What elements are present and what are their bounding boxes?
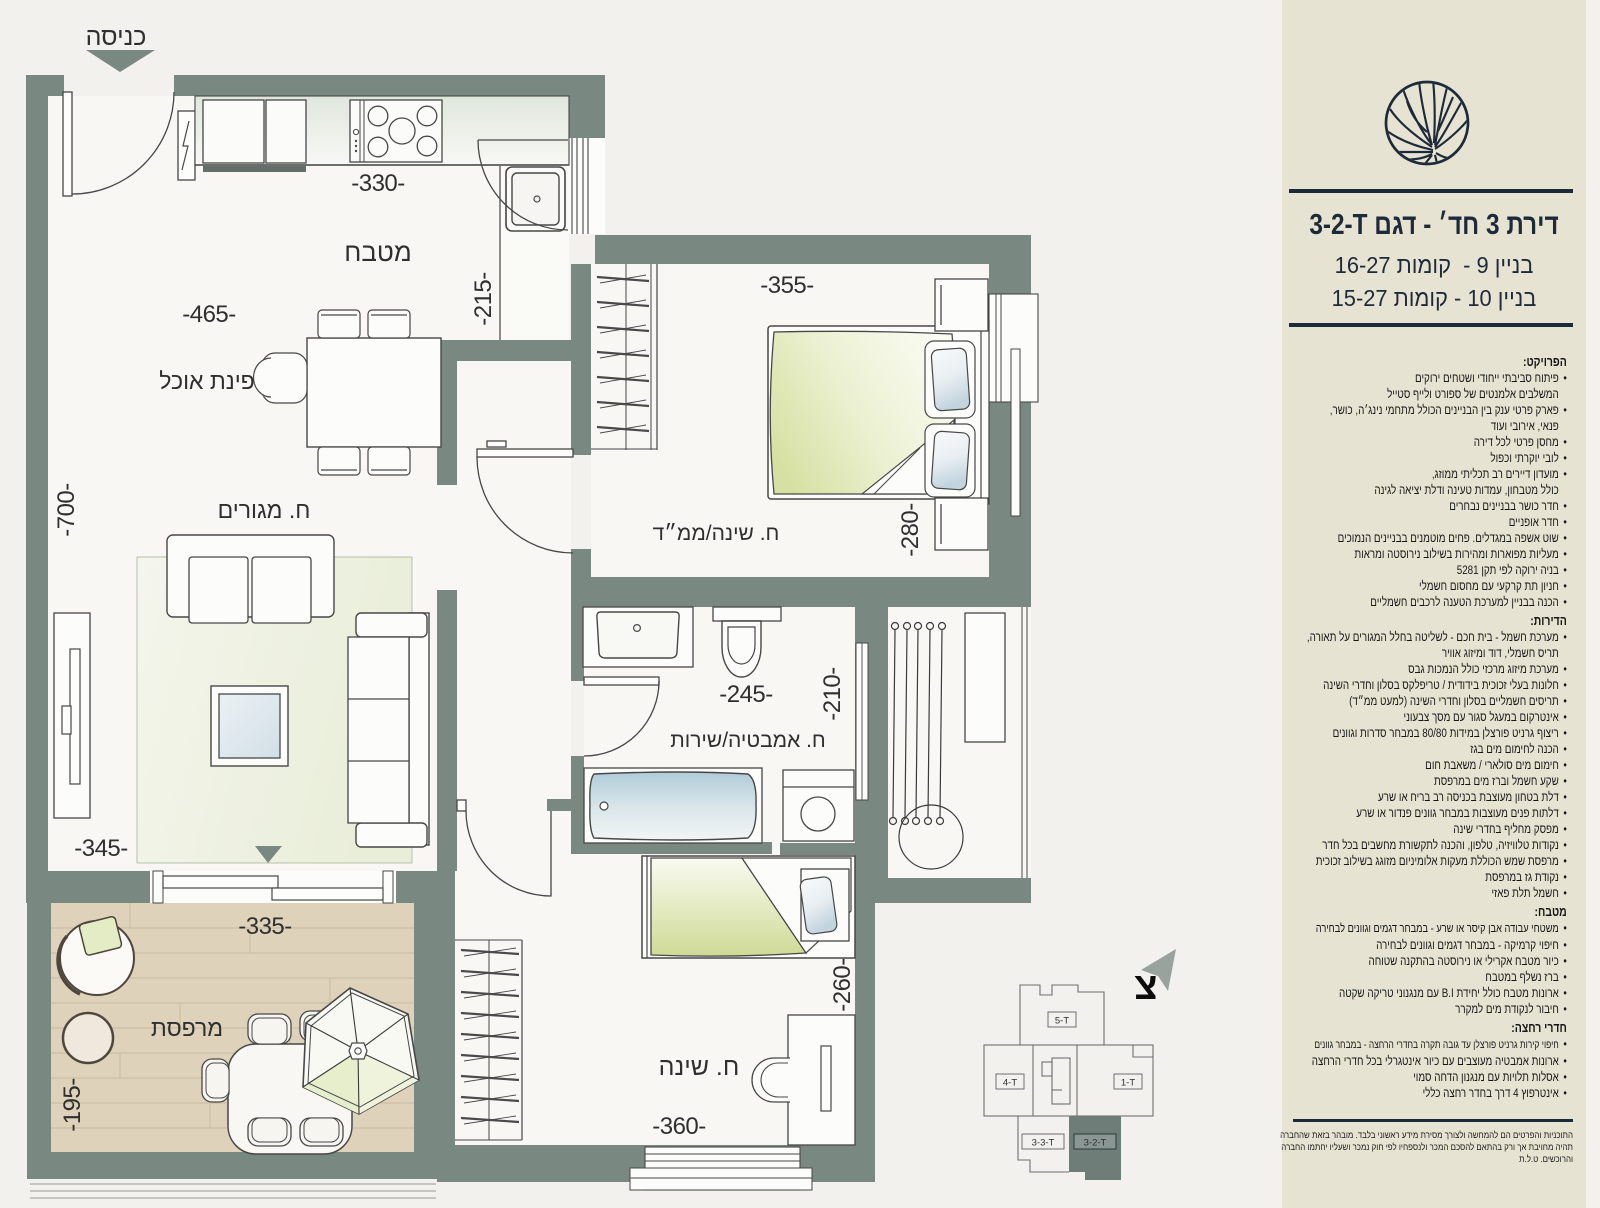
svg-text:-330-: -330- [351,170,405,197]
svg-text:ח. מגורים: ח. מגורים [218,497,311,523]
svg-text:-360-: -360- [652,1113,706,1140]
svg-text:-465-: -465- [182,301,236,328]
svg-text:-700-: -700- [53,483,80,537]
svg-text:-260-: -260- [829,958,856,1012]
svg-text:3-2-T: 3-2-T [1084,1138,1107,1149]
svg-text:מרפסת: מרפסת [151,1015,223,1041]
svg-text:מטבח: מטבח [344,237,412,267]
svg-text:-210-: -210- [819,667,846,721]
svg-text:כניסה: כניסה [86,23,147,51]
svg-text:-215-: -215- [470,272,497,326]
svg-text:ח. שינה/ממ״ד: ח. שינה/ממ״ד [653,522,780,545]
svg-text:1-T: 1-T [1121,1078,1135,1089]
svg-text:ח. אמבטיה/שירות: ח. אמבטיה/שירות [670,729,826,752]
svg-text:-280-: -280- [897,503,924,557]
svg-text:-245-: -245- [719,681,773,708]
svg-text:3-3-T: 3-3-T [1032,1138,1055,1149]
svg-text:ח. שינה: ח. שינה [659,1053,740,1081]
svg-text:-345-: -345- [74,835,128,862]
svg-text:-335-: -335- [238,913,292,940]
svg-text:4-T: 4-T [1003,1078,1017,1089]
svg-text:5-T: 5-T [1055,1016,1069,1027]
svg-text:-195-: -195- [59,1078,86,1132]
svg-text:צ: צ [1134,966,1157,1008]
svg-text:-355-: -355- [760,272,814,299]
svg-text:פינת אוכל: פינת אוכל [159,368,254,394]
